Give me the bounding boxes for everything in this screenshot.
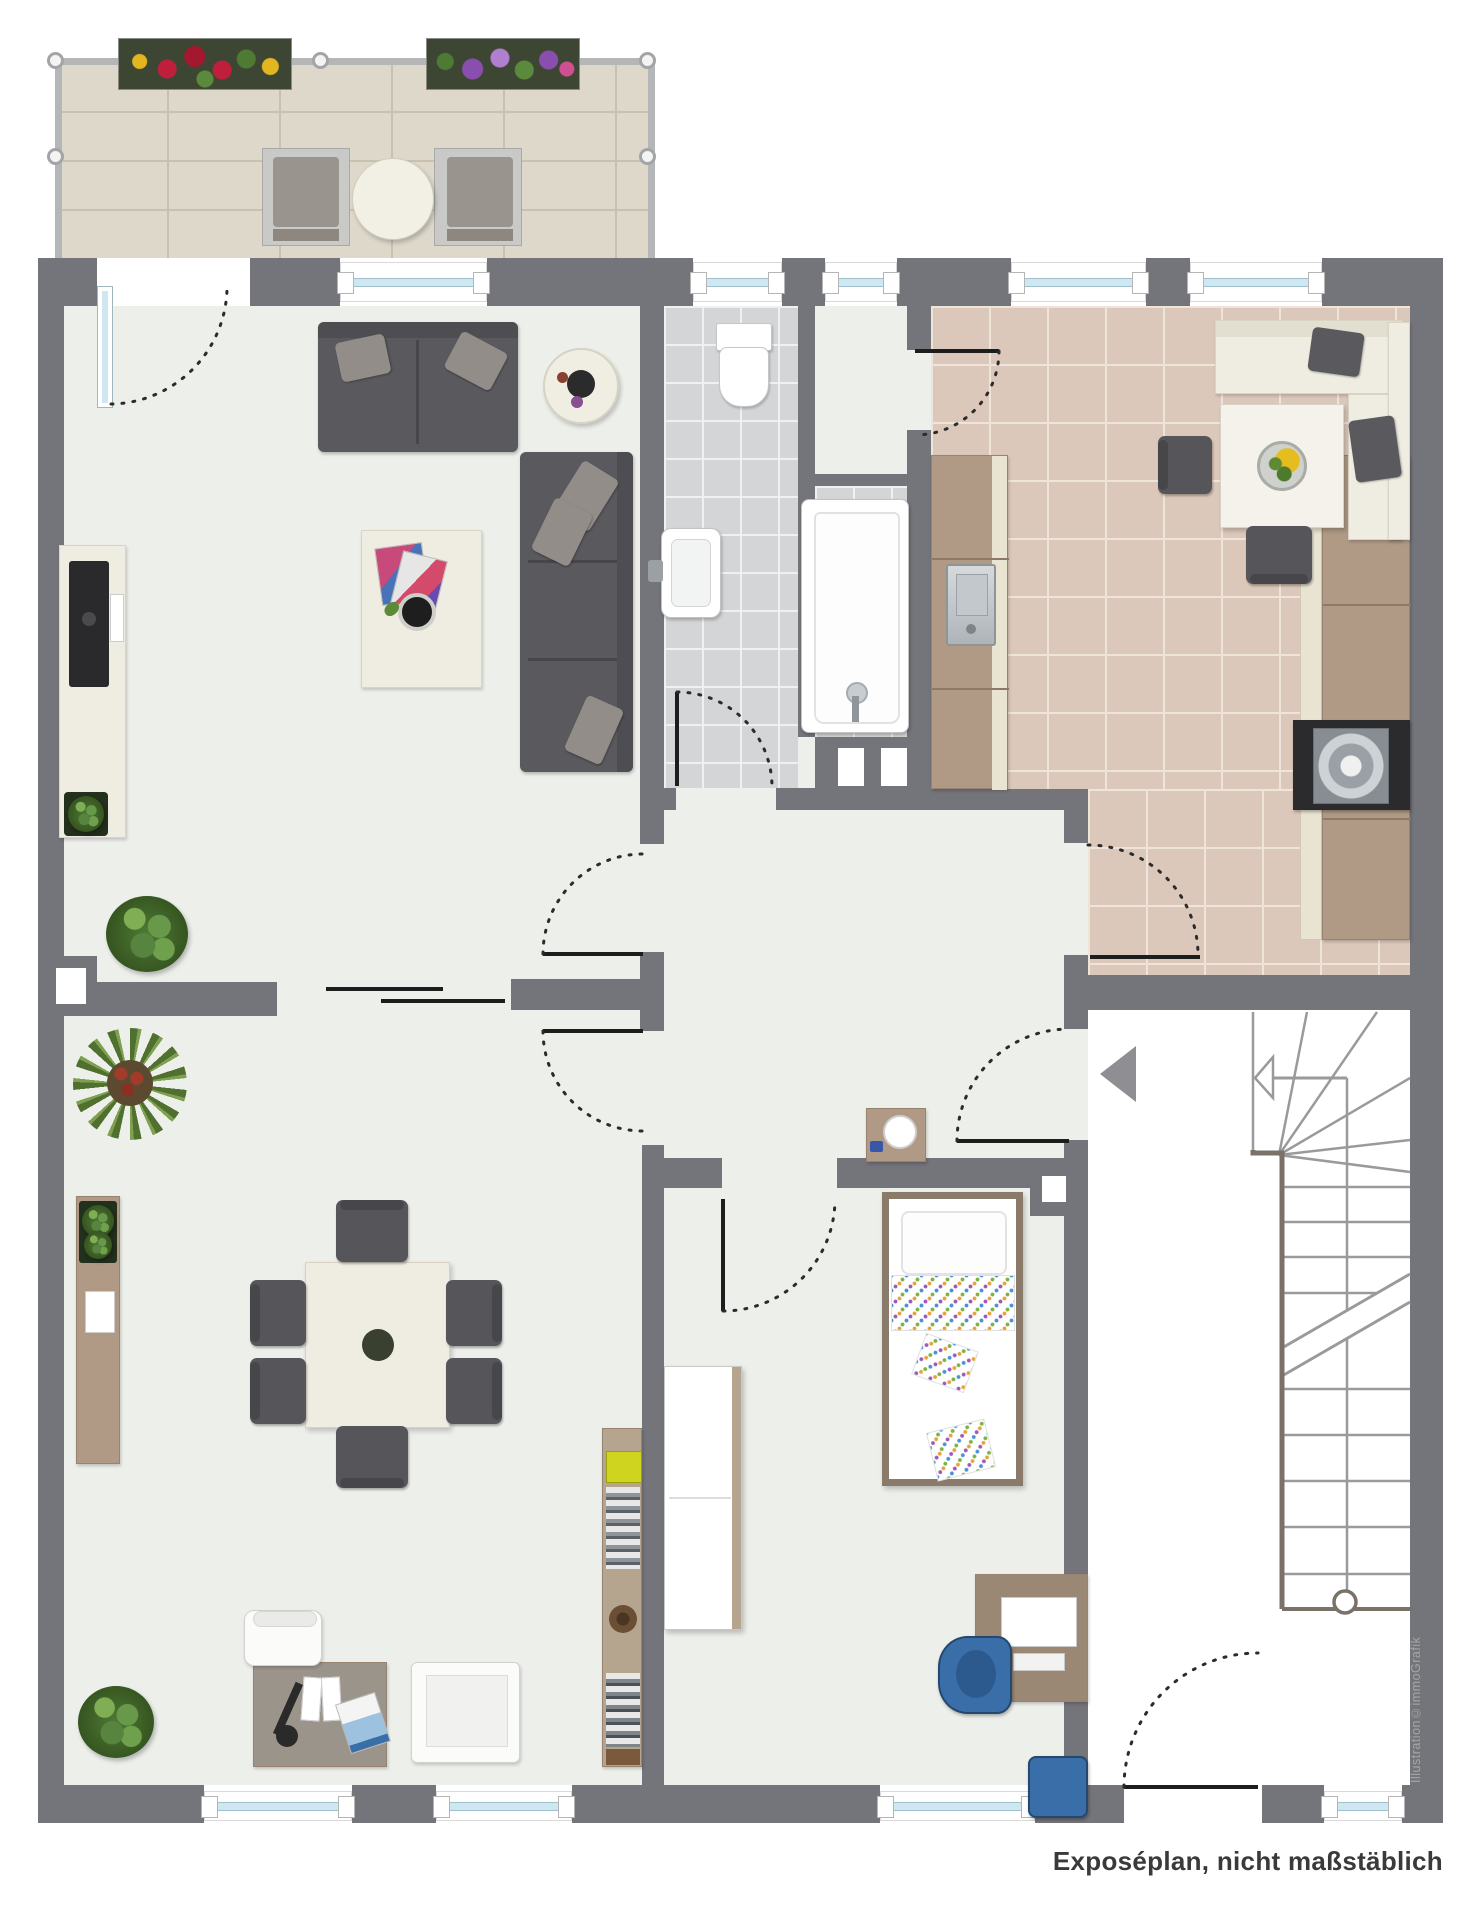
stair-stringer-wall <box>1253 1150 1282 1609</box>
footer-note: Exposéplan, nicht maßstäblich <box>1053 1846 1443 1877</box>
stair-newel-post <box>1334 1591 1356 1613</box>
living-room-door-arc <box>543 854 643 954</box>
apartment-entry-door-arc <box>957 1029 1069 1141</box>
dining-room-door-arc <box>543 1031 643 1131</box>
winder-tread <box>1279 1155 1410 1172</box>
kids-room-door-arc <box>723 1199 835 1311</box>
bathroom-door-arc <box>677 692 772 787</box>
door-swing-arcs <box>111 290 1258 1787</box>
pantry-kitchen-door-arc <box>915 351 999 435</box>
floor-plan-canvas: Exposéplan, nicht maßstäblich Illustrati… <box>0 0 1470 1919</box>
staircase <box>1253 1012 1410 1613</box>
building-door-arc <box>1124 1653 1258 1787</box>
stairs-direction-arrow-icon <box>1255 1057 1273 1098</box>
kitchen-door-arc <box>1088 845 1198 955</box>
balcony-door-arc <box>111 290 227 404</box>
entry-marker-triangle-icon <box>1100 1046 1136 1102</box>
plan-linework <box>0 0 1470 1919</box>
watermark-credit: Illustration©immoGrafik <box>1409 1588 1423 1783</box>
